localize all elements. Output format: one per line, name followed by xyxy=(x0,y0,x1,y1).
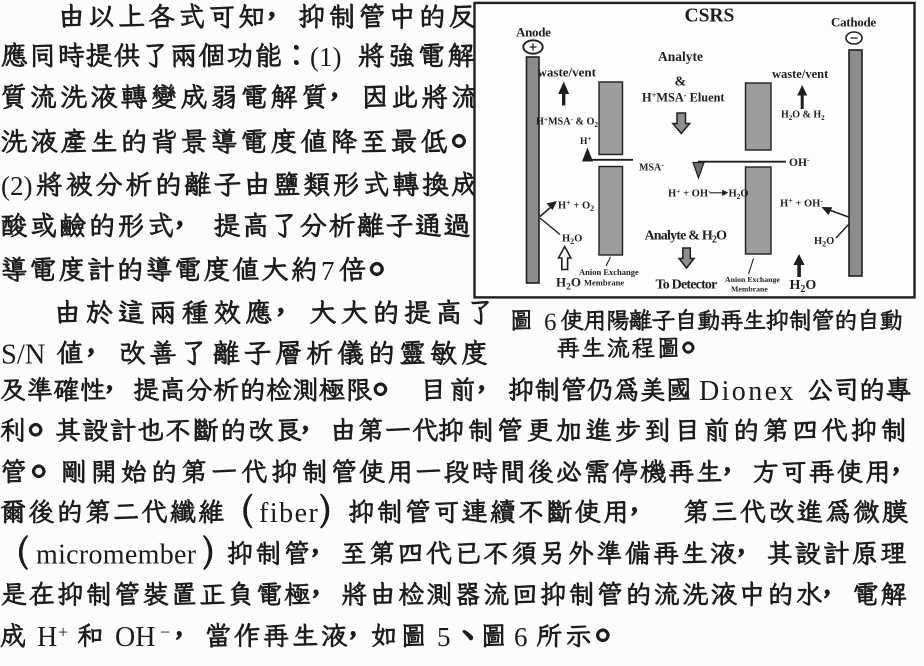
svg-text:OH: OH xyxy=(115,622,155,653)
svg-text:H2O & H2: H2O & H2 xyxy=(781,110,825,123)
svg-text:H+ + OH-: H+ + OH- xyxy=(668,187,711,200)
svg-text:fiber: fiber xyxy=(259,498,319,529)
svg-text:H: H xyxy=(37,622,57,653)
svg-text:6: 6 xyxy=(514,622,528,652)
svg-text:+: + xyxy=(58,622,68,642)
svg-text:Membrane: Membrane xyxy=(584,278,624,288)
svg-text:waste/vent: waste/vent xyxy=(772,67,829,81)
svg-text:5: 5 xyxy=(437,622,451,652)
svg-text:MSA-: MSA- xyxy=(639,161,664,174)
svg-text:(1): (1) xyxy=(310,42,341,72)
svg-text:H+ + OH-: H+ + OH- xyxy=(780,197,823,210)
svg-text:Anion Exchange: Anion Exchange xyxy=(579,267,639,277)
svg-text:6: 6 xyxy=(544,309,557,336)
svg-text:&: & xyxy=(675,75,687,90)
svg-text:(2): (2) xyxy=(1,171,32,201)
svg-text:micromember: micromember xyxy=(36,540,197,571)
svg-text:7: 7 xyxy=(321,256,335,286)
svg-text:To Detector: To Detector xyxy=(656,278,718,293)
svg-text:Cathode: Cathode xyxy=(831,15,876,30)
svg-text:OH-: OH- xyxy=(789,156,810,170)
svg-text:H+ + O2: H+ + O2 xyxy=(558,199,594,214)
svg-text:Analyte: Analyte xyxy=(658,49,703,64)
svg-text:CSRS: CSRS xyxy=(685,5,735,26)
svg-text:waste/vent: waste/vent xyxy=(538,65,597,80)
svg-text:Membrane: Membrane xyxy=(731,285,768,294)
svg-text:−: − xyxy=(160,622,170,642)
svg-text:Dionex: Dionex xyxy=(699,376,796,407)
svg-text:Anion Exchange: Anion Exchange xyxy=(725,275,780,284)
svg-text:Anode: Anode xyxy=(516,25,551,40)
svg-text:S/N: S/N xyxy=(1,340,45,371)
